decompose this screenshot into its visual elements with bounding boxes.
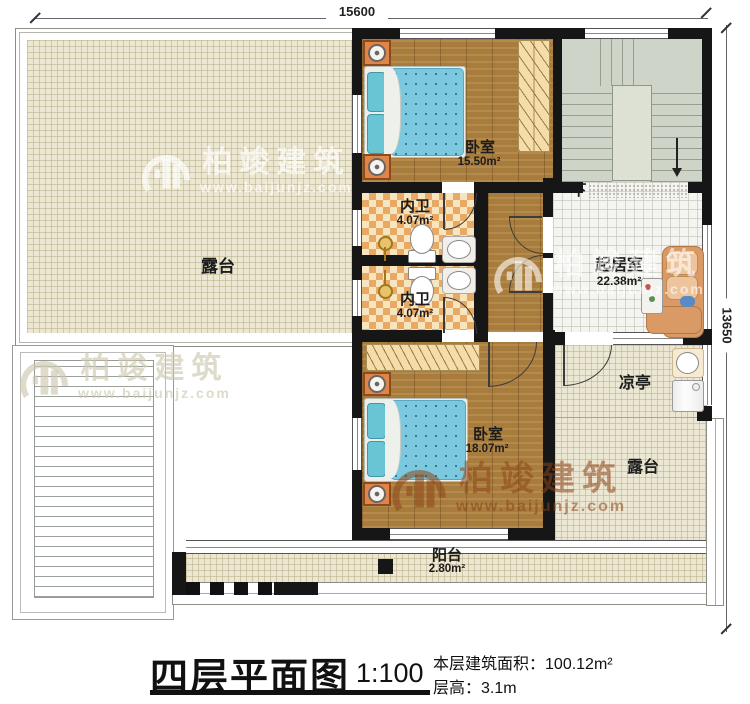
bedroom-top-label: 卧室 <box>452 140 508 156</box>
dimension-tick <box>701 7 712 18</box>
pillow <box>367 441 386 477</box>
bedroom-bottom-area: 18.07m² <box>456 443 518 455</box>
bath-bottom-label: 内卫 <box>387 292 443 308</box>
wall-bedroom-bottom-north-a <box>352 330 442 342</box>
wall-bedroom-top-south-a <box>352 182 442 193</box>
balcony-column <box>378 559 393 574</box>
wall-corridor-east-c <box>543 293 553 332</box>
door-leaf-corridor-top <box>509 216 542 218</box>
wall-pavilion-north-a <box>553 332 565 345</box>
stair-arrow-line <box>676 138 678 170</box>
toilet-bowl <box>410 224 434 254</box>
door-leaf-bath-bottom <box>443 297 445 333</box>
lamp-icon <box>368 158 386 176</box>
shower-rod <box>384 270 386 284</box>
wardrobe-top <box>518 40 550 152</box>
window-bedroom-top <box>400 28 495 39</box>
door-leaf-corridor-bottom <box>509 291 542 293</box>
terrace-left-floor <box>27 40 352 333</box>
dimension-top-value: 15600 <box>326 4 388 19</box>
window-left-bedroom-bottom <box>352 418 362 470</box>
window-left-bath-top <box>352 210 362 246</box>
floor-area-label: 本层建筑面积： <box>433 656 545 673</box>
floor-area-row: 本层建筑面积：100.12m² <box>433 650 613 674</box>
wall-corridor-east-a <box>543 178 553 217</box>
wardrobe-bottom <box>366 344 480 371</box>
bath-top-area: 4.07m² <box>387 215 443 227</box>
lamp-icon <box>368 485 386 503</box>
dimension-right-value: 13650 <box>720 299 735 353</box>
bedroom-bottom-label: 卧室 <box>460 427 516 443</box>
wall-bedroom-bottom-east <box>543 330 555 540</box>
bath-bottom-area: 4.07m² <box>387 308 443 320</box>
table-item <box>649 296 655 302</box>
stair-entry-grille <box>588 184 688 198</box>
wall-corridor-east-b <box>543 253 553 258</box>
pillow <box>367 403 386 439</box>
window-left-bedroom-top <box>352 95 362 153</box>
person-figure <box>680 296 695 307</box>
window-bedroom-bottom-south <box>390 528 508 540</box>
wall-stair-south-stub-left <box>553 182 583 193</box>
bedroom-top-area: 15.50m² <box>448 156 510 168</box>
stair-landing <box>612 85 652 181</box>
corner-column <box>172 552 186 595</box>
sink-basin <box>447 240 471 259</box>
window-left-bath-bottom <box>352 280 362 316</box>
drawing-scale: 1:100 <box>356 658 424 689</box>
living-label: 起居室 <box>588 258 650 275</box>
bath-top-label: 内卫 <box>387 199 443 215</box>
living-area: 22.38m² <box>588 275 650 288</box>
title-underline <box>150 690 430 695</box>
washing-machine-dial <box>692 383 700 391</box>
lamp-icon <box>368 44 386 62</box>
floor-height-label: 层高： <box>433 680 481 697</box>
wall-stair-west <box>553 28 562 182</box>
pergola-slats <box>34 360 154 598</box>
terrace-right-parapet <box>706 418 724 606</box>
door-leaf-bedroom-bottom <box>488 342 490 386</box>
wall-bath-east <box>474 182 488 342</box>
terrace-right-label: 露台 <box>615 460 671 477</box>
lamp-icon <box>368 375 386 393</box>
door-leaf-pavilion <box>563 345 565 385</box>
balcony-label: 阳台 <box>419 548 475 564</box>
wall-stair-south-stub-right <box>688 182 712 193</box>
pavilion-sink-basin <box>676 352 699 374</box>
terrace-left-label: 露台 <box>188 258 248 276</box>
floor-height-row: 层高：3.1m <box>433 674 517 698</box>
window-stairs <box>585 28 668 39</box>
stair-treads-left <box>562 88 612 182</box>
pavilion-label: 凉亭 <box>607 376 663 393</box>
wall-segment <box>274 582 318 595</box>
sink-basin <box>447 271 471 290</box>
bed-bottom-duvet <box>390 400 466 480</box>
shower-rod <box>384 247 386 261</box>
door-leaf-bath-top <box>443 193 445 229</box>
stair-treads-top <box>600 39 644 86</box>
pavilion-terrace-divider <box>555 417 705 418</box>
sofa-cushion <box>666 251 698 275</box>
stair-arrow-head <box>672 168 682 177</box>
floor-area-value: 100.12m² <box>545 656 613 673</box>
bed-bottom-sheet-fold <box>385 400 401 478</box>
balcony-area: 2.80m² <box>419 563 475 575</box>
floor-plan: 15600 13650 露台 下 <box>0 0 750 704</box>
bed-top-sheet-fold <box>384 68 401 154</box>
dashed-wall <box>186 582 274 595</box>
floor-height-value: 3.1m <box>481 680 517 697</box>
